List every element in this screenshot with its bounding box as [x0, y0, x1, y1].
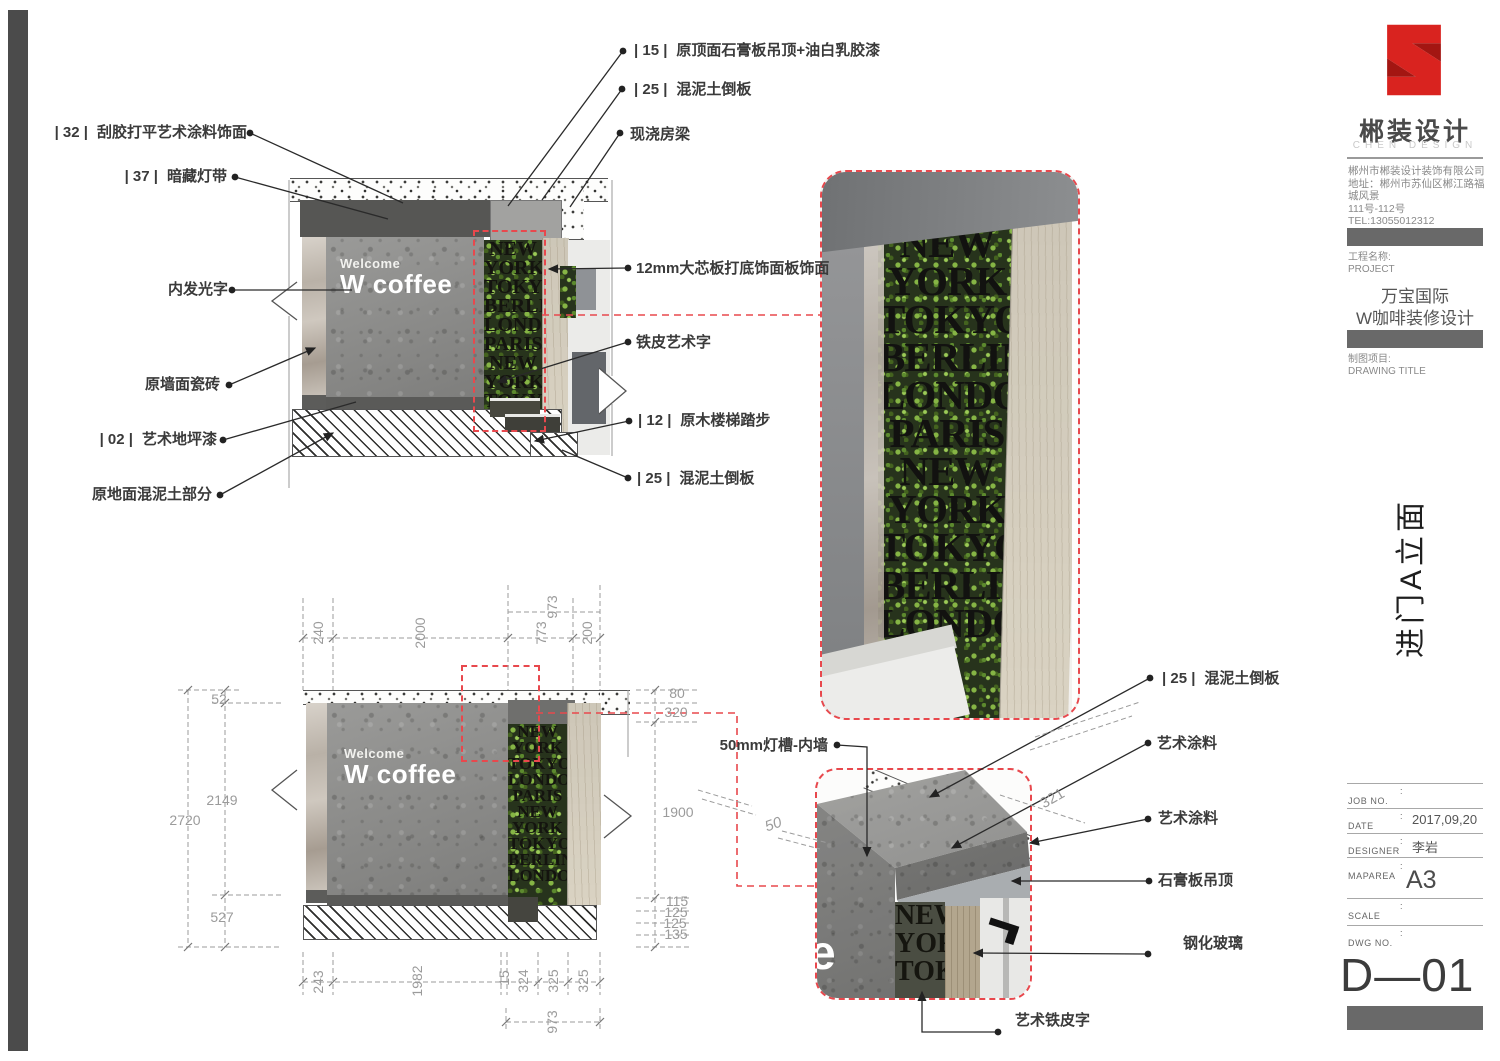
screen-word: BERLIN: [878, 338, 1016, 376]
annotation-overlay: [0, 0, 1500, 1061]
dim-973-top: 973: [544, 595, 560, 618]
project-label: 工程名称:: [1348, 252, 1391, 264]
field-divider: [1347, 857, 1483, 858]
field-divider: [1347, 898, 1483, 899]
screen-word: YORK: [895, 930, 945, 958]
screen-word: NEW: [878, 452, 1016, 490]
field-divider: [1347, 808, 1483, 809]
sign-wcoffee: W coffee: [340, 271, 452, 297]
screen-word: LONDON: [878, 376, 1016, 414]
detail-reference-box-top: [473, 230, 546, 432]
panel-right-gap: [1072, 172, 1078, 718]
dim-243: 243: [310, 970, 326, 993]
field-dwg-no: :DWG NO.: [1348, 929, 1403, 948]
company-line: 111号-112号: [1348, 203, 1488, 216]
screen-word: YORK: [878, 490, 1016, 528]
letter-screen-small-bg: NEWYORKTOKYO: [895, 902, 945, 998]
sign-letter-e: e: [815, 926, 836, 981]
wall-tile-base-b: [306, 890, 327, 903]
dim-325a: 325: [545, 969, 561, 992]
ceiling-recess: [300, 200, 490, 237]
field-divider: [1347, 783, 1483, 784]
field-divider: [1347, 925, 1483, 926]
floor-hatch-b: [303, 905, 597, 940]
callout-backlit-letters: 内发光字: [168, 281, 228, 299]
dim-2149: 2149: [206, 792, 237, 808]
wall-sign-b: Welcome W coffee: [344, 746, 456, 787]
dim-2000: 2000: [412, 617, 428, 648]
wall-base-band-b: [327, 895, 508, 905]
drawing-sheet: Welcome W coffee NEWYORKTOKYOBERLINLONDO…: [0, 0, 1500, 1061]
detail-panel-small: NEWYORKTOKYO e: [815, 768, 1032, 1000]
screen-word: NEW: [895, 902, 945, 930]
dim-773: 773: [533, 621, 549, 644]
detail-reference-box-bottom: [461, 665, 540, 762]
dim-2720: 2720: [169, 812, 200, 828]
callout-core-board-panel: 12mm大芯板打底饰面板饰面: [636, 260, 829, 278]
dim-973-bottom: 973: [544, 1010, 560, 1033]
callout-gypsum-board-ceiling: 石膏板吊顶: [1158, 872, 1233, 890]
callout-original-concrete-floor: 原地面混泥土部分: [92, 486, 212, 504]
company-line: 郴州市郴装设计装饰有限公司: [1348, 165, 1488, 178]
field-maparea-value: A3: [1406, 866, 1437, 895]
dim-320: 320: [664, 704, 687, 720]
callout-detail-inverted-slab: | 25 |混泥土倒板: [1162, 670, 1279, 688]
detail-panel-large: NEWYORKTOKYOBERLINLONDONPARISNEWYORKTOKY…: [820, 170, 1080, 720]
screen-word: LONDON: [508, 868, 567, 884]
project-name-2: W咖啡装修设计: [1347, 304, 1483, 329]
titleblock-bar-2: [1347, 330, 1483, 348]
stone-column-large: [999, 191, 1080, 720]
interior-furniture: [572, 352, 606, 424]
callout-iron-art-letters: 铁皮艺术字: [636, 334, 711, 352]
dim-52: 52: [211, 691, 227, 707]
callout-original-wall-tile: 原墙面瓷砖: [145, 376, 220, 394]
callout-concrete-inverted-slab-1: | 25 |混泥土倒板: [634, 81, 751, 99]
drawing-title-label-en: DRAWING TITLE: [1348, 366, 1426, 378]
dim-50: 50: [763, 814, 784, 836]
screen-word: TOKYO: [878, 300, 1016, 338]
dim-80: 80: [669, 685, 685, 701]
sign-wcoffee-b: W coffee: [344, 761, 456, 787]
field-date-value: 2017,09,20: [1412, 812, 1477, 827]
field-designer: :DESIGNER: [1348, 837, 1403, 856]
wall-tile-base: [302, 395, 326, 409]
callout-art-paint-1: 艺术涂料: [1157, 735, 1217, 753]
callout-art-iron-letters: 艺术铁皮字: [1015, 1012, 1090, 1030]
titleblock-bar-1: [1347, 228, 1483, 246]
slab-edge-section: [600, 690, 630, 715]
dim-321: 321: [1037, 785, 1067, 812]
screen-word: TOKYO: [895, 958, 945, 986]
field-scale: :SCALE: [1348, 902, 1403, 921]
callout-hidden-light-strip: | 37 |暗藏灯带: [125, 168, 227, 186]
wood-panel: [945, 906, 980, 998]
company-line: TEL:13055012312: [1348, 215, 1488, 228]
callout-art-floor-paint: | 02 |艺术地坪漆: [100, 431, 217, 449]
company-logo: [1372, 16, 1456, 104]
wall-tile-strip-b: [306, 703, 327, 890]
callout-wood-stair-tread: | 12 |原木楼梯踏步: [638, 412, 770, 430]
sheet-left-bar: [8, 10, 28, 1051]
dim-527: 527: [210, 909, 233, 925]
callout-gypsum-ceiling-paint: | 15 |原顶面石膏板吊顶+油白乳胶漆: [634, 42, 880, 60]
field-date: :DATE: [1348, 812, 1403, 831]
field-job-no: :JOB NO.: [1348, 787, 1403, 806]
letter-screen-small: NEWYORKTOKYO: [895, 902, 945, 998]
column-plant: [560, 266, 576, 318]
screen-word: PARIS: [878, 414, 1016, 452]
callout-art-paint-2: 艺术涂料: [1158, 810, 1218, 828]
dim-324: 324: [515, 969, 531, 992]
glass-panel-stripe: [1003, 898, 1009, 998]
dim-1982: 1982: [409, 965, 425, 996]
drawing-title-label: 制图项目:: [1348, 354, 1391, 366]
field-divider: [1347, 833, 1483, 834]
field-designer-value: 李岩: [1412, 837, 1438, 856]
screen-word: BERLIN: [878, 566, 1016, 604]
project-label-en: PROJECT: [1348, 264, 1395, 276]
screen-word: TOKYO: [878, 528, 1016, 566]
interior-shelf: [576, 268, 596, 310]
dwg-number: D—01: [1340, 948, 1474, 1002]
callout-tempered-glass: 钢化玻璃: [1183, 935, 1243, 953]
callout-light-trough: 50mm灯槽-内墙: [720, 737, 828, 755]
wall-tile-strip: [302, 237, 326, 397]
dim-135: 135: [664, 926, 687, 942]
field-maparea: :MAPAREA: [1348, 862, 1403, 881]
dim-240: 240: [310, 621, 326, 644]
screen-word: YORK: [878, 262, 1016, 300]
wall-sign: Welcome W coffee: [340, 256, 452, 297]
callout-art-coating-finish: | 32 |刮胶打平艺术涂料饰面: [55, 124, 247, 142]
floor-hatch-lower: [530, 432, 578, 457]
dim-325b: 325: [575, 969, 591, 992]
brand-name-en: CHEN DESIGN: [1347, 140, 1483, 151]
stone-column-b: [567, 703, 601, 905]
brand-divider: [1347, 157, 1483, 159]
titleblock-bar-3: [1347, 1006, 1483, 1030]
company-line: 地址：郴州市苏仙区郴江路福城风景: [1348, 178, 1488, 203]
callout-concrete-inverted-slab-2: | 25 |混泥土倒板: [637, 470, 754, 488]
drawing-title-vertical: 进门A立面: [1386, 498, 1430, 658]
wall-base-band: [326, 397, 484, 409]
stair-step-b: [508, 897, 538, 922]
callout-cast-beam: 现浇房梁: [630, 126, 690, 144]
dim-15: 15: [496, 970, 512, 986]
dim-200: 200: [579, 621, 595, 644]
dim-1900: 1900: [662, 804, 693, 820]
